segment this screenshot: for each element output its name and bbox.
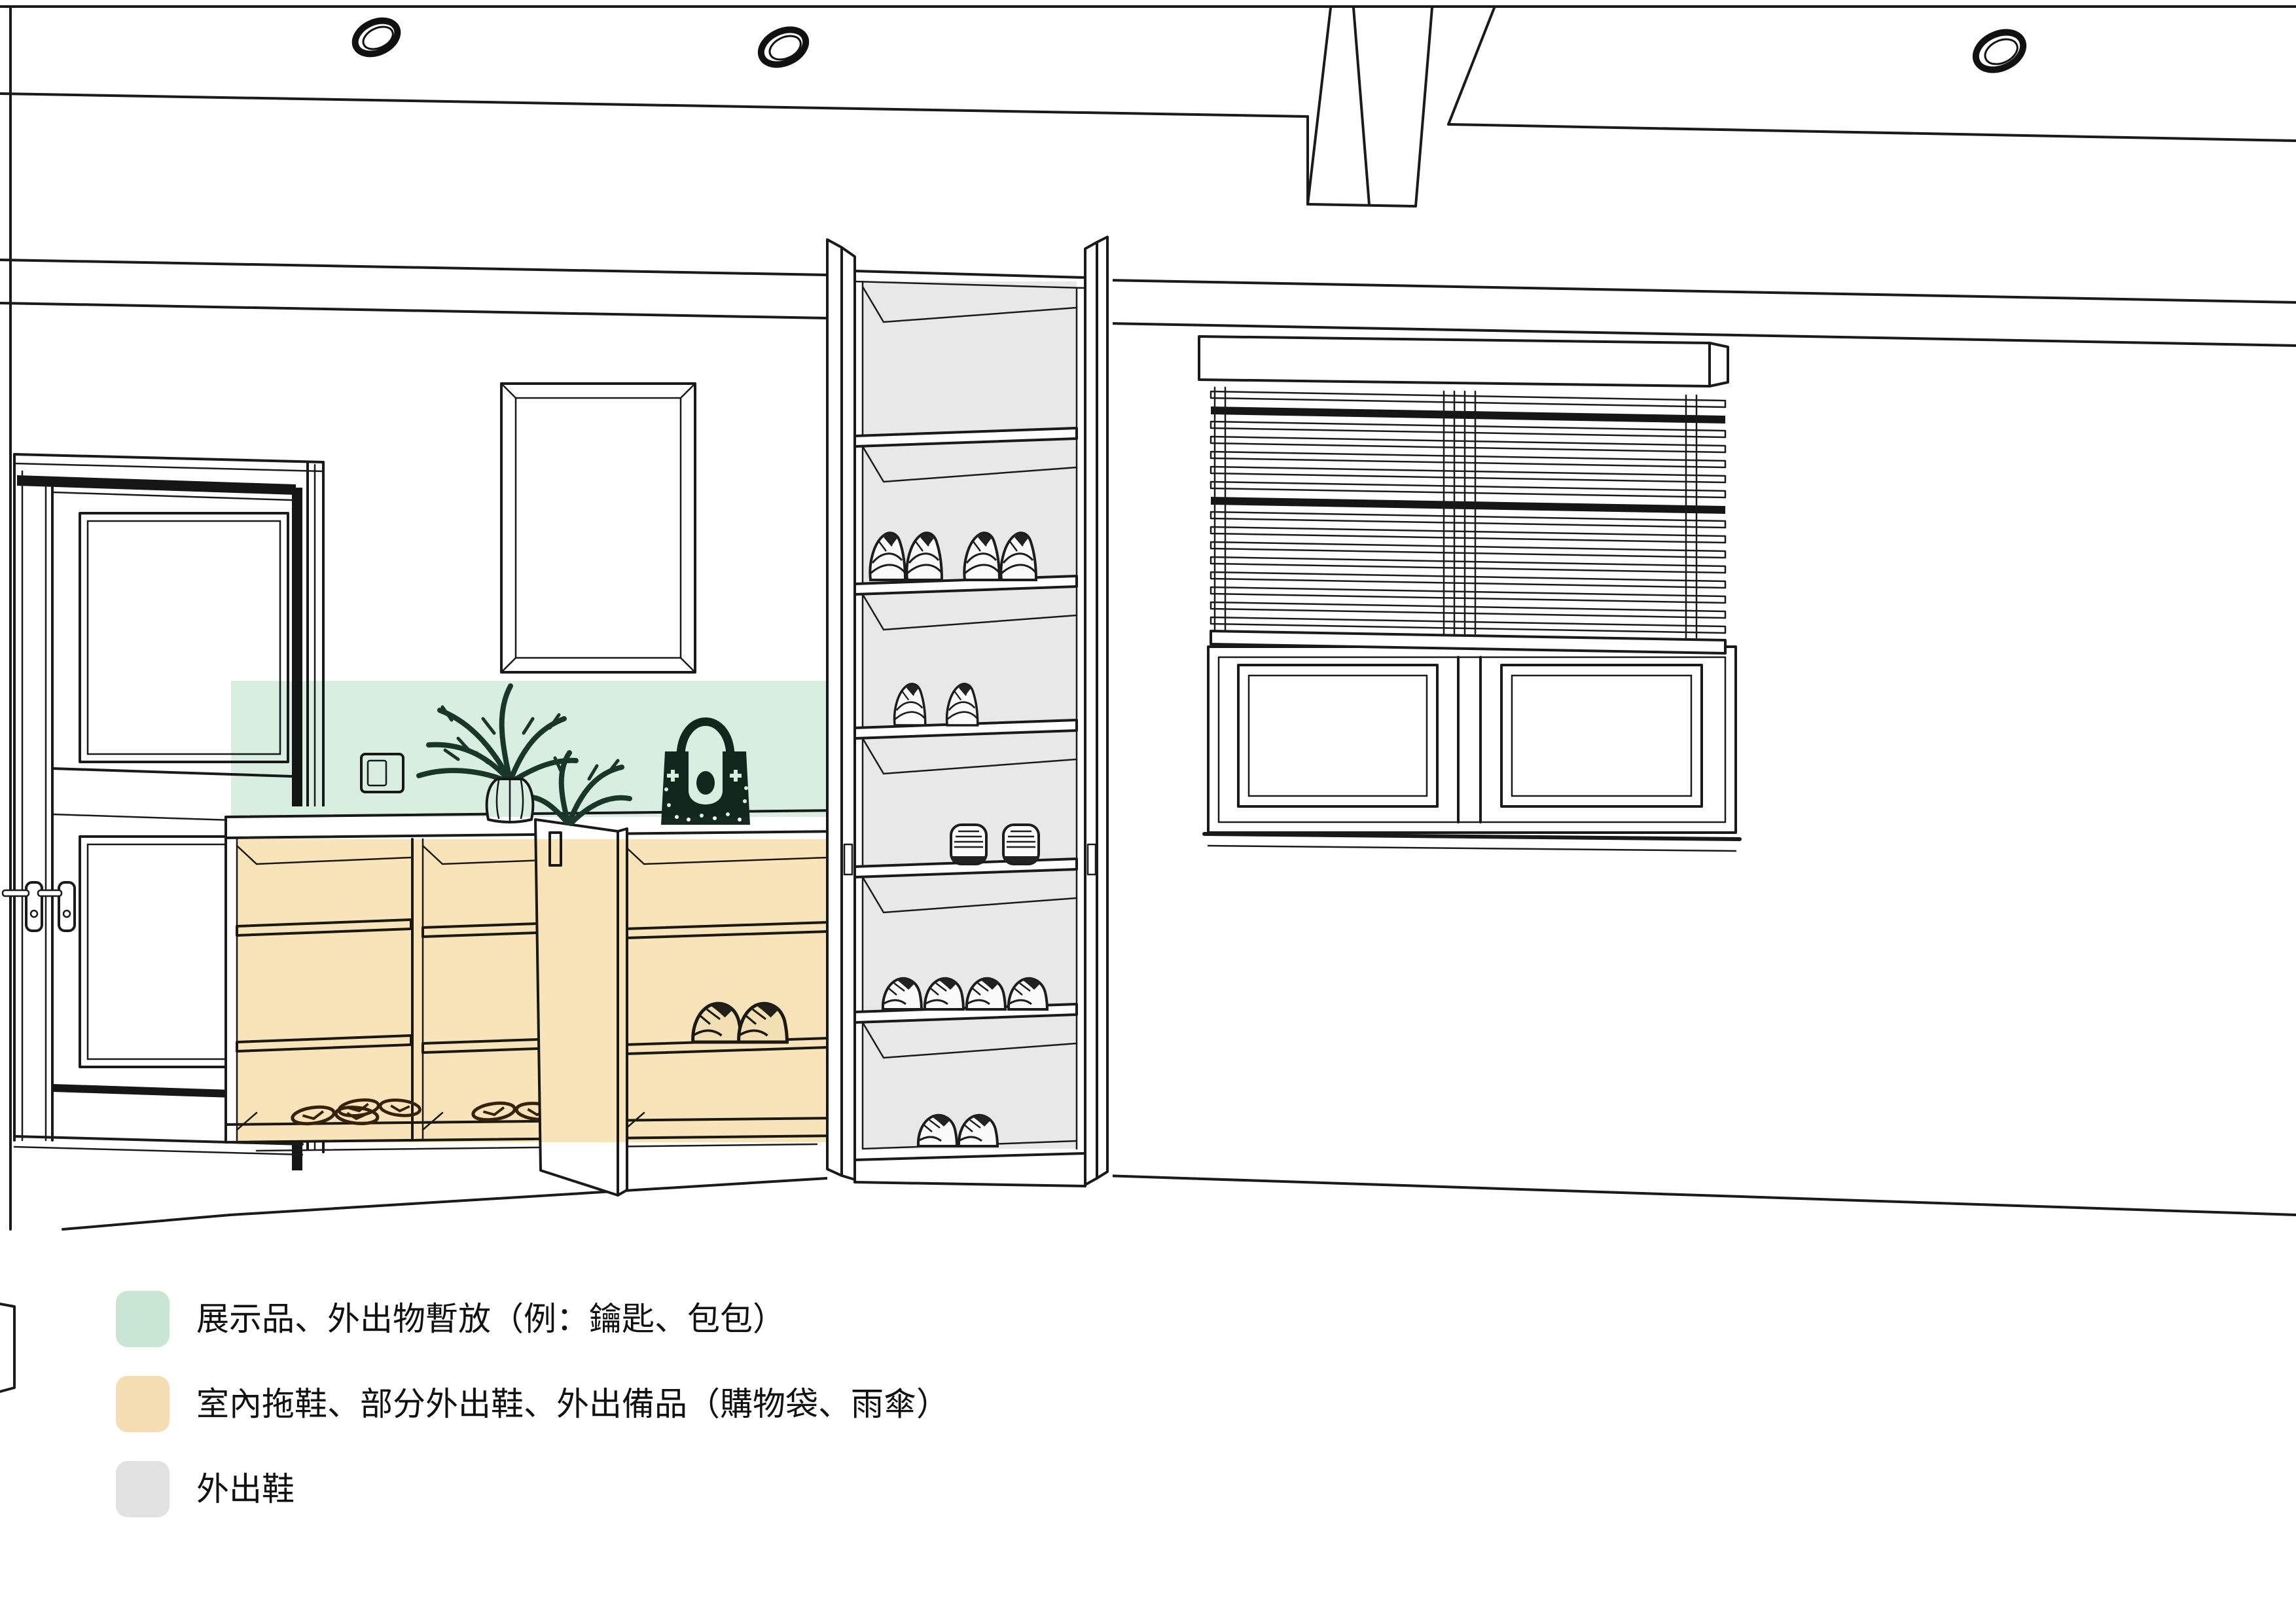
zone-indoor-overlay	[237, 839, 827, 1142]
tall-cabinet-open-door-right	[1085, 237, 1107, 1185]
zone-display-overlay	[231, 681, 827, 817]
tall-cabinet-open-door-left	[827, 240, 855, 1180]
legend-label-indoor: 室內拖鞋、部分外出鞋、外出備品（購物袋、雨傘）	[196, 1386, 949, 1422]
blind-headbox	[1199, 336, 1710, 386]
legend-label-display: 展示品、外出物暫放（例：鑰匙、包包）	[196, 1301, 785, 1337]
legend-swatch-outdoor	[116, 1461, 170, 1517]
legend-label-outdoor: 外出鞋	[196, 1471, 295, 1507]
tall-cabinet	[827, 234, 1113, 1186]
picture-frame	[501, 384, 695, 672]
legend-swatch-indoor	[116, 1376, 170, 1432]
interior-elevation-diagram: 展示品、外出物暫放（例：鑰匙、包包） 室內拖鞋、部分外出鞋、外出備品（購物袋、雨…	[0, 0, 2296, 1624]
legend-swatch-display	[116, 1291, 170, 1347]
window-frame	[1204, 647, 1740, 851]
